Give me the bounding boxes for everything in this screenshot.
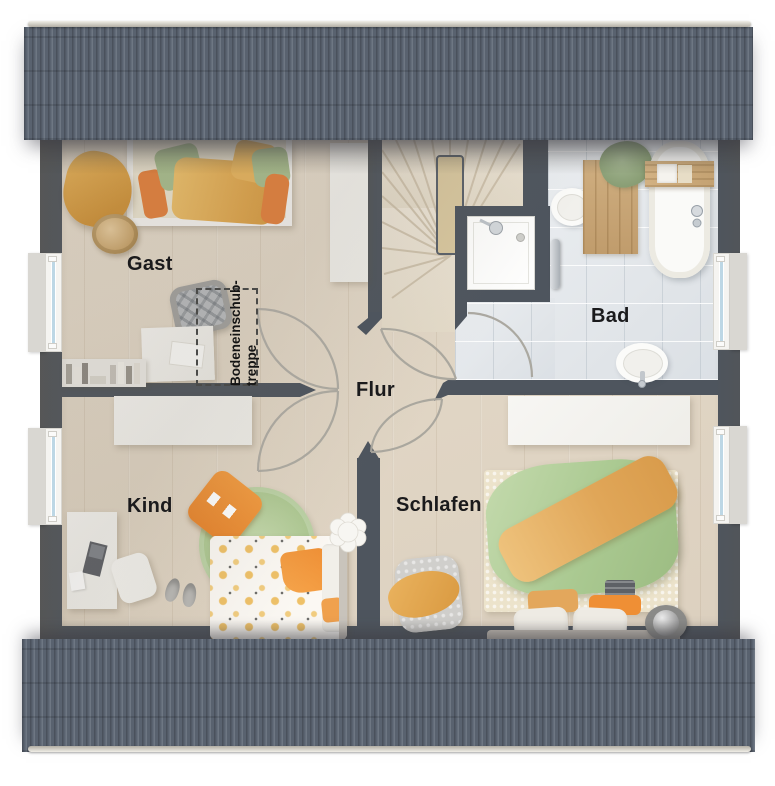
room-label-flur: Flur — [356, 379, 395, 401]
window-handle — [48, 431, 57, 437]
book-spine — [74, 367, 80, 384]
attic-hatch-label-line2: treppe — [244, 345, 259, 386]
book-spine — [82, 363, 88, 384]
book-spine — [110, 365, 116, 384]
bathroom-tile-floor-lower — [455, 298, 555, 380]
book-shelf — [62, 359, 146, 387]
room-label-bad: Bad — [591, 305, 630, 327]
window-sill — [730, 253, 747, 350]
book-spine — [118, 362, 124, 384]
wall-left-top — [40, 140, 62, 253]
wall-bad-south — [448, 380, 718, 395]
towel-rail — [551, 239, 560, 289]
wall-stairs-bad — [523, 140, 548, 208]
shower-tray — [467, 216, 535, 290]
attic-hatch-label: Bodeneinschub- treppe — [228, 290, 260, 386]
attic-hatch-label-line1: Bodeneinschub- — [228, 280, 243, 386]
stairwell-floor-left — [382, 208, 455, 332]
bathtub-caddy — [645, 161, 714, 187]
window-handle — [716, 429, 725, 435]
towel-white — [657, 164, 677, 183]
window-handle — [716, 341, 725, 347]
room-label-gast: Gast — [127, 253, 173, 275]
room-label-schlafen: Schlafen — [396, 494, 482, 516]
kids-bed — [210, 536, 347, 640]
window-handle — [716, 515, 725, 521]
floor-plan-rendering: Gast Bad Flur Kind Schlafen Bodeneinschu… — [0, 0, 775, 786]
window-sill — [28, 428, 45, 525]
window-handle — [48, 516, 57, 522]
book-stack — [90, 376, 106, 384]
book-spine — [126, 366, 132, 384]
side-table — [645, 605, 687, 641]
gast-cabinet — [330, 143, 368, 282]
paper-sheet — [69, 571, 86, 591]
wall-right-top — [718, 140, 740, 253]
shower-enclosure-wall-left — [455, 206, 467, 316]
window-sill — [730, 426, 747, 524]
window-glass — [720, 259, 723, 344]
wall-right-mid — [718, 350, 740, 426]
kind-dresser — [114, 396, 252, 445]
window-sill — [28, 253, 45, 352]
roof-band-top — [24, 27, 753, 140]
room-label-kind: Kind — [127, 495, 173, 517]
window-handle — [716, 256, 725, 262]
window-bad — [713, 253, 747, 350]
bed-frame-edge — [339, 536, 347, 640]
book-spine — [66, 364, 72, 384]
window-schlafen — [713, 426, 747, 524]
window-gast — [28, 253, 62, 352]
guest-bed — [127, 140, 292, 226]
window-kind — [28, 428, 62, 525]
wicker-basket — [92, 214, 138, 254]
window-handle — [48, 343, 57, 349]
wall-kind-schlafen — [357, 458, 380, 650]
window-glass — [720, 432, 723, 518]
roof-band-bottom — [22, 639, 755, 752]
book-spine — [134, 363, 140, 384]
window-glass — [52, 259, 55, 346]
roof-ridge-bottom — [28, 746, 751, 752]
basin-tap — [640, 371, 645, 385]
roof-ridge-top — [28, 21, 751, 27]
window-glass — [52, 434, 55, 519]
wall-stairwell-gast — [368, 140, 382, 312]
towel-beige — [678, 165, 692, 183]
window-handle — [48, 256, 57, 262]
shower-drain — [516, 233, 525, 242]
schlafen-wardrobe — [508, 396, 690, 445]
table-sphere-decor — [653, 610, 679, 636]
stairwell-floor-upper — [382, 140, 523, 208]
